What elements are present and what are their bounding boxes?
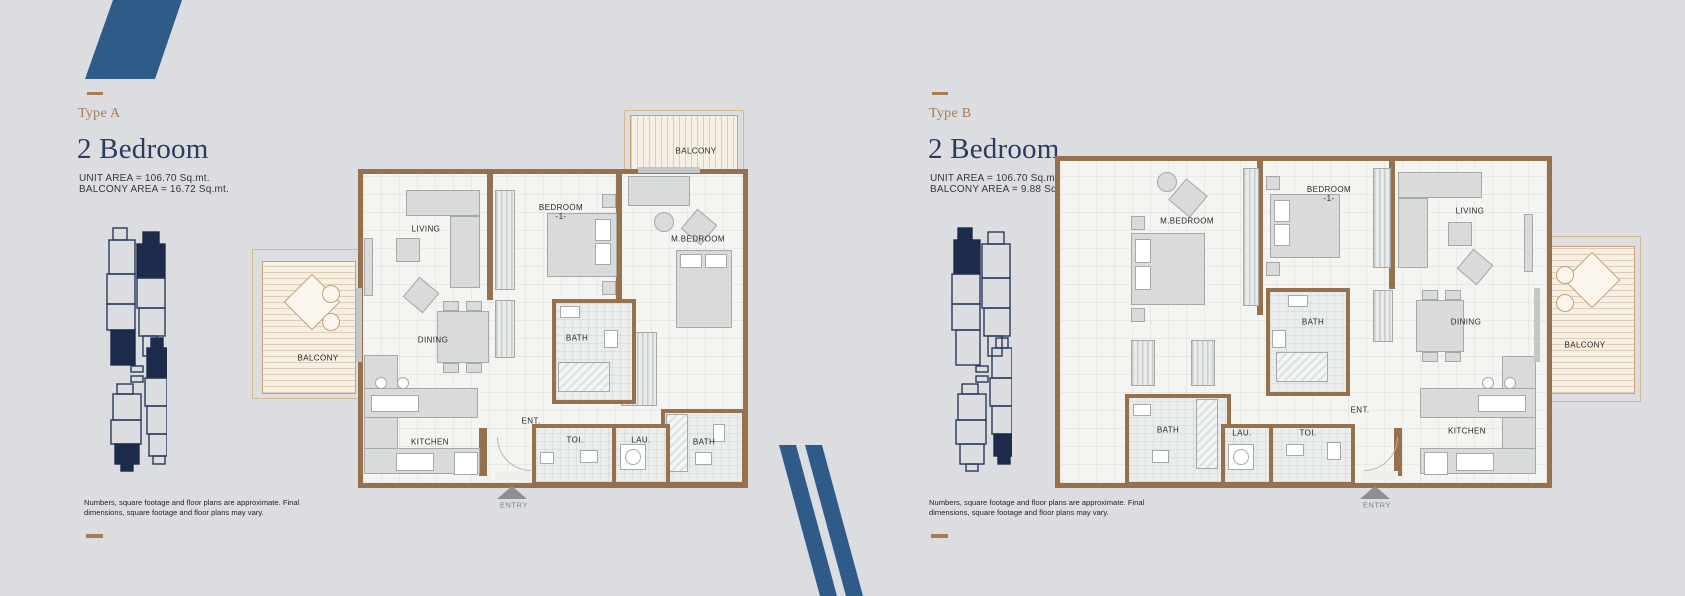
- sliding-door: [356, 288, 362, 362]
- label-entrance: ENT.: [522, 417, 541, 426]
- label-kitchen: KITCHEN: [1448, 427, 1486, 436]
- kitchen-sink: [371, 395, 419, 412]
- fridge: [454, 452, 478, 475]
- entry-gap: [1362, 471, 1398, 480]
- nightstand: [1266, 176, 1280, 190]
- washer-drum: [1233, 449, 1249, 465]
- sofa: [1398, 172, 1482, 198]
- deco-diagonal-stripes: [775, 445, 905, 596]
- label-bedroom1: BEDROOM -1-: [1307, 185, 1351, 203]
- pillow: [1274, 224, 1290, 246]
- closet: [1373, 290, 1393, 342]
- balcony-chair: [322, 285, 340, 303]
- label-bath: BATH: [1302, 318, 1324, 327]
- coffee-table: [1448, 222, 1472, 246]
- sofa: [1398, 198, 1428, 268]
- label-bath2: BATH: [1157, 426, 1179, 435]
- chair: [1422, 352, 1438, 362]
- sink: [1133, 404, 1151, 416]
- label-dining: DINING: [418, 336, 448, 345]
- unit-area-b: UNIT AREA = 106.70 Sq.mt.: [930, 173, 1061, 185]
- label-toilet: TOI.: [566, 436, 583, 445]
- toilet: [1272, 330, 1286, 348]
- sink: [1286, 444, 1304, 456]
- label-bedroom1-line1: BEDROOM: [1307, 185, 1351, 194]
- wardrobe: [1373, 168, 1391, 268]
- chair: [1445, 352, 1461, 362]
- page-title-a: 2 Bedroom: [77, 133, 208, 166]
- closet: [1191, 340, 1215, 386]
- label-living: LIVING: [1456, 207, 1485, 216]
- gold-dash-top-a: [87, 92, 103, 95]
- disclaimer-b: Numbers, square footage and floor plans …: [929, 498, 1154, 517]
- toilet: [1327, 442, 1341, 460]
- gold-dash-top-b: [932, 92, 948, 95]
- faucet: [1482, 377, 1494, 389]
- closet: [1131, 340, 1155, 386]
- nightstand: [1131, 308, 1145, 322]
- wardrobe: [1243, 168, 1259, 306]
- chair: [466, 363, 482, 373]
- toilet: [1152, 450, 1169, 463]
- coffee-table: [396, 238, 420, 262]
- nightstand: [1266, 262, 1280, 276]
- washer-drum: [625, 449, 641, 465]
- stove: [396, 453, 434, 471]
- entry-arrow: [497, 486, 527, 499]
- sofa: [450, 216, 480, 288]
- faucet: [375, 377, 387, 389]
- balcony-chair: [1556, 294, 1574, 312]
- pillow: [595, 219, 611, 241]
- chair: [1445, 290, 1461, 300]
- tv-unit: [364, 238, 373, 296]
- sink: [560, 306, 580, 318]
- label-bath2: BATH: [693, 438, 715, 447]
- shower: [1196, 399, 1218, 469]
- gold-dash-bottom-a: [86, 534, 103, 538]
- tv-unit: [1524, 214, 1533, 272]
- sliding-door: [638, 167, 700, 173]
- wardrobe: [495, 190, 515, 290]
- faucet: [397, 377, 409, 389]
- shower: [558, 362, 610, 392]
- label-master-bedroom: M.BEDROOM: [1160, 217, 1214, 226]
- label-laundry: LAU.: [631, 436, 650, 445]
- closet: [495, 300, 515, 358]
- pillow: [595, 243, 611, 265]
- chair: [443, 301, 459, 311]
- nightstand: [1131, 216, 1145, 230]
- deco-parallelogram: [84, 0, 184, 79]
- kitchen-sink: [1478, 395, 1526, 412]
- disclaimer-a: Numbers, square footage and floor plans …: [84, 498, 309, 517]
- faucet: [1504, 377, 1516, 389]
- label-kitchen: KITCHEN: [411, 438, 449, 447]
- label-balcony-side: BALCONY: [297, 354, 338, 363]
- sofa: [406, 190, 480, 216]
- label-bedroom1-line2: -1-: [539, 212, 583, 221]
- key-plan-type-b: [948, 226, 1012, 472]
- toilet: [695, 452, 712, 465]
- label-living: LIVING: [412, 225, 441, 234]
- label-bedroom1-line2: -1-: [1307, 194, 1351, 203]
- stove: [1456, 453, 1494, 471]
- balcony-area-a: BALCONY AREA = 16.72 Sq.mt.: [79, 184, 229, 196]
- balcony-area-b: BALCONY AREA = 9.88 Sq.mt.: [930, 184, 1074, 196]
- page-title-b: 2 Bedroom: [928, 133, 1059, 166]
- balcony-top-deck: [630, 115, 738, 172]
- label-entrance: ENT.: [1351, 406, 1370, 415]
- label-bath: BATH: [566, 334, 588, 343]
- sliding-door: [1534, 288, 1540, 362]
- wall: [479, 428, 487, 476]
- key-plan-type-a: [103, 226, 167, 472]
- sink: [540, 452, 554, 464]
- label-laundry: LAU.: [1232, 429, 1251, 438]
- toilet: [580, 450, 598, 463]
- pillow: [680, 254, 702, 268]
- pillow: [1274, 200, 1290, 222]
- type-label-b: Type B: [929, 106, 971, 122]
- label-toilet: TOI.: [1299, 429, 1316, 438]
- wardrobe: [628, 176, 690, 206]
- wall: [487, 172, 493, 300]
- fridge: [1424, 452, 1448, 475]
- nightstand: [602, 281, 616, 295]
- chair: [1422, 290, 1438, 300]
- brochure-page: Type A 2 Bedroom UNIT AREA = 106.70 Sq.m…: [0, 0, 1685, 596]
- pillow: [705, 254, 727, 268]
- shower: [1276, 352, 1328, 382]
- label-master-bedroom: M.BEDROOM: [671, 235, 725, 244]
- toilet: [604, 330, 618, 348]
- entry-arrow: [1360, 486, 1390, 499]
- gold-dash-bottom-b: [931, 534, 948, 538]
- chair: [466, 301, 482, 311]
- entry-gap: [495, 471, 531, 480]
- ottoman: [1157, 172, 1177, 192]
- label-bedroom1: BEDROOM -1-: [539, 203, 583, 221]
- label-balcony-top: BALCONY: [675, 147, 716, 156]
- unit-area-a: UNIT AREA = 106.70 Sq.mt.: [79, 173, 210, 185]
- balcony-chair: [322, 313, 340, 331]
- label-bedroom1-line1: BEDROOM: [539, 203, 583, 212]
- ottoman: [654, 212, 674, 232]
- balcony-chair: [1556, 266, 1574, 284]
- entry-label: ENTRY: [500, 501, 528, 510]
- sink: [1288, 295, 1308, 307]
- chair: [443, 363, 459, 373]
- label-dining: DINING: [1451, 318, 1481, 327]
- nightstand: [602, 194, 616, 208]
- type-label-a: Type A: [78, 106, 120, 122]
- pillow: [1135, 239, 1151, 263]
- label-balcony-side: BALCONY: [1564, 341, 1605, 350]
- entry-label: ENTRY: [1363, 501, 1391, 510]
- pillow: [1135, 266, 1151, 290]
- wall: [1394, 428, 1402, 476]
